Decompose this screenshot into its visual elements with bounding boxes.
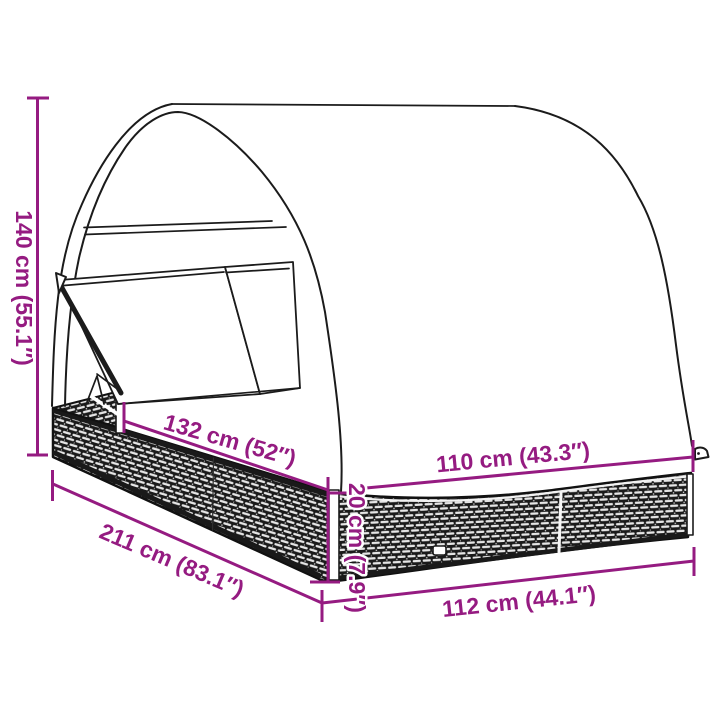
svg-text:110 cm (43.3″): 110 cm (43.3″): [435, 437, 591, 478]
svg-text:20 cm (7.9″): 20 cm (7.9″): [344, 483, 370, 613]
svg-text:140 cm (55.1″): 140 cm (55.1″): [11, 210, 37, 366]
